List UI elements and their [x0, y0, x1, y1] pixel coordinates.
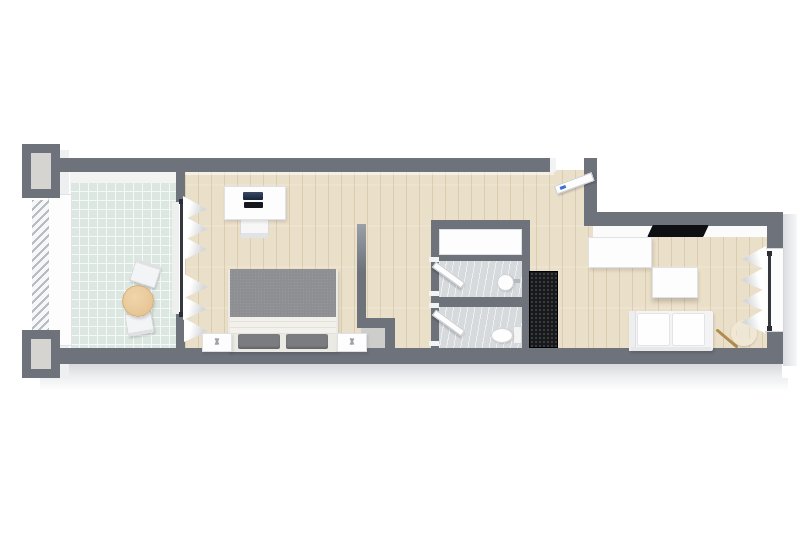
wall-niche-top — [357, 318, 395, 328]
nightstand-plant-left — [213, 338, 221, 346]
balcony-railing — [32, 200, 49, 338]
wall-bath-divider-1 — [439, 255, 522, 261]
bed-duvet — [230, 269, 336, 317]
sofa-back-edge — [631, 347, 711, 351]
terrace-floor — [70, 182, 178, 348]
sofa-cushion-2 — [672, 313, 705, 346]
wc-door-jamb-top — [429, 303, 439, 308]
living-window-glass — [768, 254, 771, 328]
tv — [647, 225, 709, 237]
terrace-parapet — [48, 194, 72, 346]
toilet-bowl — [491, 328, 513, 343]
bed-pillow-right — [286, 334, 328, 349]
bottom-wall-extrusion — [46, 364, 782, 378]
sideboard — [588, 237, 652, 268]
washbasin — [497, 274, 514, 291]
sofa — [629, 311, 713, 351]
floor-plan — [0, 0, 800, 533]
double-bed — [228, 269, 338, 352]
wall-bedroom-east — [357, 224, 366, 320]
sofa-cushion-1 — [637, 313, 670, 346]
nightstand-plant-right — [348, 338, 356, 346]
terrace-window-sill — [172, 202, 179, 314]
bottom-wall-extrusion-2 — [40, 378, 788, 391]
washbasin-tap — [514, 279, 520, 283]
wall-top-living — [584, 212, 783, 226]
dark-wardrobe — [529, 271, 558, 348]
coffee-table — [652, 267, 698, 298]
laptop-screen — [243, 192, 263, 200]
entry-door-tag — [560, 185, 567, 190]
wc-door-jamb-bottom — [429, 341, 439, 346]
toilet-tank — [513, 326, 522, 344]
terrace-window-glass — [180, 202, 183, 314]
wall-bath-top — [431, 220, 530, 229]
wall-bath-divider-2 — [431, 297, 530, 307]
terrace-wall-face — [70, 172, 178, 183]
terrace-round-table — [122, 285, 154, 317]
bed-pillow-left — [238, 334, 280, 349]
shower-unit — [439, 229, 522, 255]
shower-door-jamb-bottom — [429, 291, 439, 296]
chimney-pillar-top — [22, 144, 60, 198]
shower-door-jamb-top — [429, 257, 439, 262]
entry-door-jamb — [550, 158, 556, 172]
laptop-keyboard — [244, 202, 263, 208]
sofa-armrest-left — [629, 311, 636, 351]
wall-top-main — [52, 158, 556, 172]
chimney-pillar-bottom — [22, 330, 60, 378]
bed-sheet — [230, 317, 336, 334]
living-window-frame — [764, 248, 784, 332]
right-wall-extrusion — [783, 214, 797, 366]
wall-niche-right — [385, 328, 395, 350]
wall-bath-left — [431, 229, 439, 348]
